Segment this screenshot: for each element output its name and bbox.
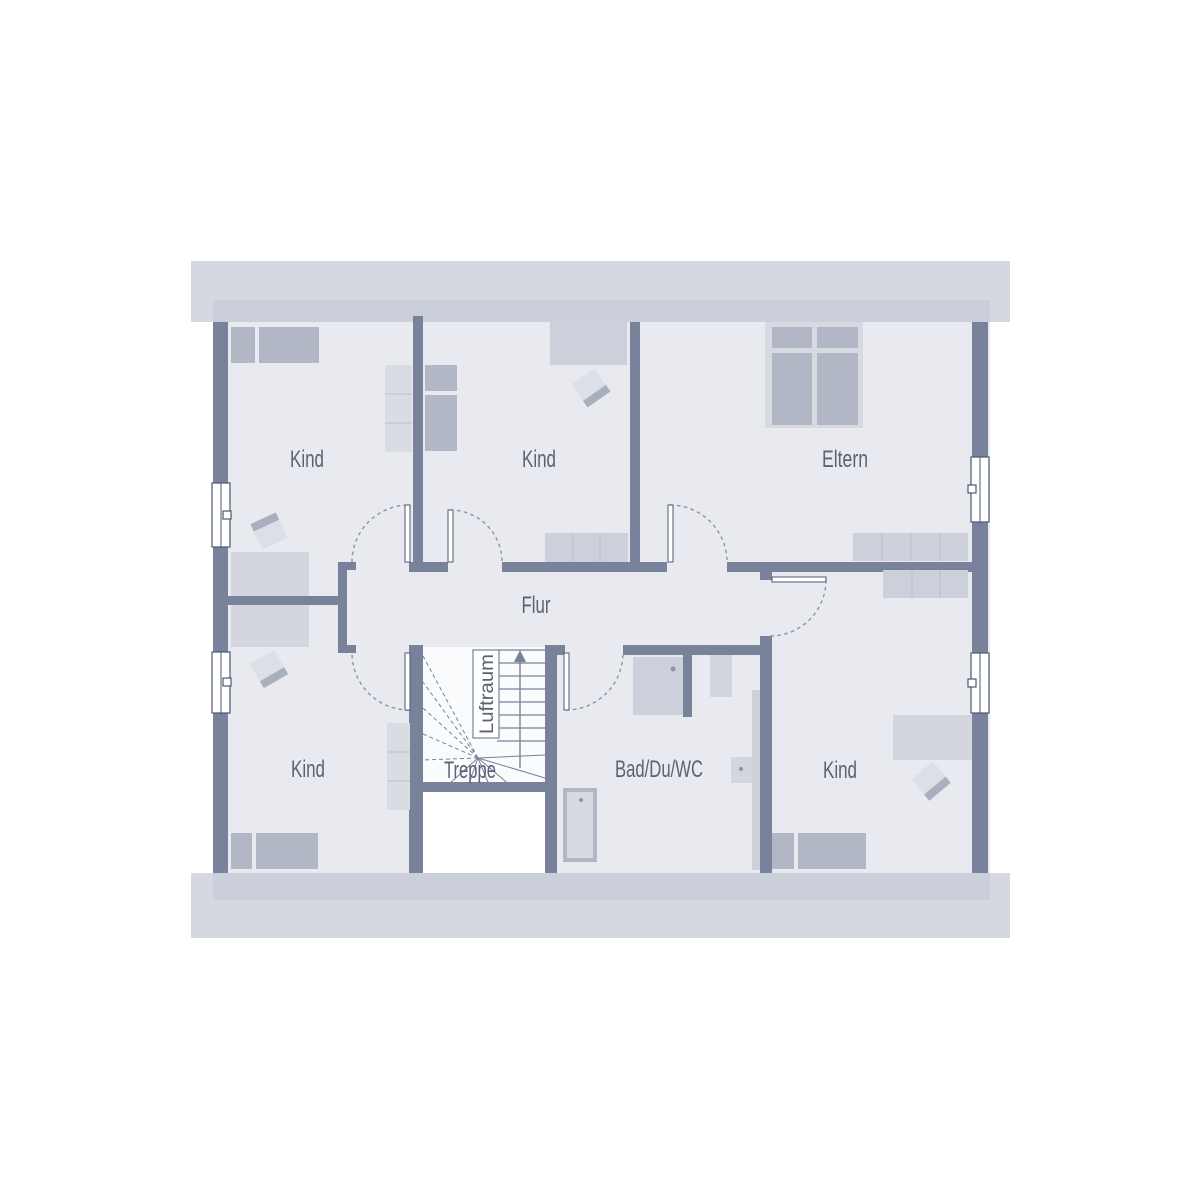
bed-pillow [231,833,252,869]
wall-stairwell-west [409,645,423,873]
wall-exterior-left [213,322,228,873]
wall-kind-tl-tm [413,316,423,562]
bed-pillow [772,327,812,348]
room-label-bad: Bad/Du/WC [615,756,703,783]
desk [231,552,309,596]
bed-pillow [425,365,457,391]
bed-mattress [772,353,812,425]
room-label-flur: Flur [522,592,551,619]
bathtub-inner [567,792,593,858]
window-kind-bottom-right [968,653,989,713]
bed-mattress [259,327,319,363]
room-label-eltern: Eltern [822,446,868,473]
wall-flur-niche-stub-bottom [347,645,356,653]
window-eltern [968,457,989,522]
wall-flur-north-b [502,562,667,572]
wall-bad-east [760,636,772,873]
room-label-kind-top-middle: Kind [522,446,556,473]
bed-mattress [817,353,858,425]
wall-flur-north-a [409,562,448,572]
shelf [385,365,412,452]
shower-head [671,667,676,672]
wardrobe [550,322,627,365]
room-label-kind-top-left: Kind [290,446,324,473]
wc [710,655,732,697]
wall-flur-niche-stub-top [347,562,356,570]
wall-exterior-right [972,322,988,873]
roof-band-top-inner [213,300,990,322]
desk [231,605,309,647]
wall-kind-left-divider [228,596,338,605]
roof-band-bottom-inner [213,873,990,900]
wall-kind-br-west-stub [760,572,772,580]
desk [893,715,972,760]
tub-drain [579,798,583,802]
bed-pillow [817,327,858,348]
wall-flur-niche-bar [338,562,347,653]
wall-kind-tm-eltern [630,322,640,562]
wall-bad-north [623,645,760,655]
floor-plan: Kind Kind Eltern Flur Treppe Bad/Du/WC K… [0,0,1200,1200]
room-label-treppe: Treppe [444,757,496,784]
basin-faucet [739,767,743,771]
wall-shower-partition [683,655,692,717]
bed-pillow [231,327,255,363]
shower [633,657,683,715]
room-label-kind-bottom-right: Kind [823,757,857,784]
dresser [545,533,628,562]
wardrobe [883,570,968,598]
bed-mattress [425,395,457,451]
shelf [387,723,410,810]
bed-mattress [256,833,318,869]
bed-pillow [772,833,794,869]
luftraum-void [423,792,545,873]
wall-stairwell-east [545,645,557,873]
window-kind-bottom-left [212,652,231,713]
window-kind-top-left [212,483,231,547]
room-label-luftraum: Luftraum [477,654,498,734]
room-label-kind-bottom-left: Kind [291,756,325,783]
bed-mattress [798,833,866,869]
bath-cabinet [752,690,760,870]
